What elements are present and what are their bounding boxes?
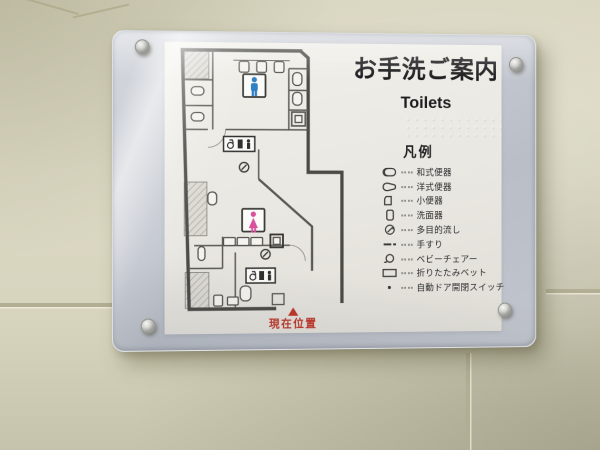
legend-label: 多目的流し (417, 223, 461, 236)
washbasin-fixture (272, 294, 284, 305)
sink-fixture (227, 297, 238, 305)
tile-grout-line (466, 353, 470, 450)
mounting-screw-bottom-left (141, 319, 156, 334)
legend-title: 凡例 (397, 142, 439, 162)
legend-label: 洗面器 (417, 209, 443, 222)
legend-label: 自動ドア開閉スイッチ (417, 281, 505, 294)
baby-chair-icon (380, 252, 399, 265)
tile-scuff-mark (15, 0, 79, 15)
folding-bed-icon (380, 267, 399, 280)
legend-leader-dots (401, 228, 412, 231)
mens-sign (243, 74, 265, 97)
braille-emboss (403, 115, 501, 141)
western-toilet-icon (380, 180, 399, 193)
accessible-icons-box-womens (246, 268, 275, 283)
legend-leader-dots (401, 272, 412, 275)
legend-row: 小便器 (380, 194, 499, 209)
legend-label: 洋式便器 (417, 180, 452, 193)
sign-subtitle-en: Toilets (350, 93, 502, 114)
squat-toilet-icon (380, 165, 399, 178)
child-icon (247, 143, 250, 149)
multipurpose-sink-icon (380, 223, 399, 236)
legend-label: 和式便器 (417, 165, 452, 178)
sign-paper: 現在位置 お手洗ご案内 Toilets 凡例 和式便器 (165, 42, 502, 335)
auto-door-switch-icon (380, 281, 399, 294)
sink-fixture (251, 237, 263, 245)
mounting-screw-top-left (135, 39, 150, 54)
sign-title: お手洗ご案内 (350, 55, 502, 84)
tile-scuff-mark (73, 4, 130, 19)
mounting-screw-top-right (509, 57, 523, 72)
handrail-icon (380, 238, 399, 251)
washbasin-fixture (273, 237, 280, 244)
legend-row: ベビーチェアー (380, 251, 499, 266)
legend-leader-dots (401, 214, 412, 217)
legend-leader-dots (401, 257, 412, 260)
womens-sign (242, 209, 264, 233)
legend-row: 洋式便器 (380, 179, 499, 194)
legend-row: 洗面器 (380, 208, 499, 223)
legend-label: 折りたたみベット (417, 266, 487, 279)
squat-toilet-fixture (198, 247, 205, 261)
tile-grout-line (546, 289, 600, 293)
washbasin-fixture (295, 116, 302, 123)
urinal-icon (380, 194, 399, 207)
legend-row: 多目的流し (380, 222, 499, 237)
legend-label: 手すり (417, 238, 443, 251)
toilet-fixture (293, 92, 302, 105)
person-icon (238, 139, 243, 148)
legend-row: 自動ドア開閉スイッチ (380, 280, 499, 295)
legend-leader-dots (401, 243, 412, 246)
toilet-fixture (191, 87, 204, 96)
legend-row: 手すり (380, 237, 499, 252)
mounting-screw-bottom-right (498, 303, 512, 318)
photo-scene: 現在位置 お手洗ご案内 Toilets 凡例 和式便器 (0, 0, 600, 450)
legend-leader-dots (401, 185, 412, 188)
legend-row: 和式便器 (380, 165, 499, 180)
toilet-fixture (293, 73, 302, 86)
legend-label: ベビーチェアー (417, 252, 478, 265)
current-location-label: 現在位置 (252, 315, 334, 332)
floor-plan-map (169, 42, 348, 323)
child-icon (268, 275, 271, 281)
person-icon (259, 271, 264, 280)
legend-leader-dots (401, 170, 412, 173)
urinal-fixture (274, 62, 284, 73)
sign-panel: 現在位置 お手洗ご案内 Toilets 凡例 和式便器 (112, 30, 536, 352)
toilet-fixture (208, 192, 217, 205)
washbasin-icon (380, 209, 399, 222)
legend: 和式便器 洋式便器 小便器 (380, 165, 499, 296)
toilet-fixture (191, 112, 204, 121)
accessible-icons-box-mens (224, 136, 255, 151)
legend-leader-dots (401, 286, 412, 289)
legend-leader-dots (401, 199, 412, 202)
legend-label: 小便器 (417, 194, 443, 207)
sink-fixture (224, 238, 236, 246)
urinal-fixture (257, 61, 267, 72)
tile-grout-line (0, 303, 119, 307)
legend-row: 折りたたみベット (380, 265, 499, 280)
sink-fixture (237, 238, 249, 246)
sink-fixture (214, 295, 223, 306)
toilet-fixture (240, 286, 251, 301)
urinal-fixture (239, 61, 249, 72)
